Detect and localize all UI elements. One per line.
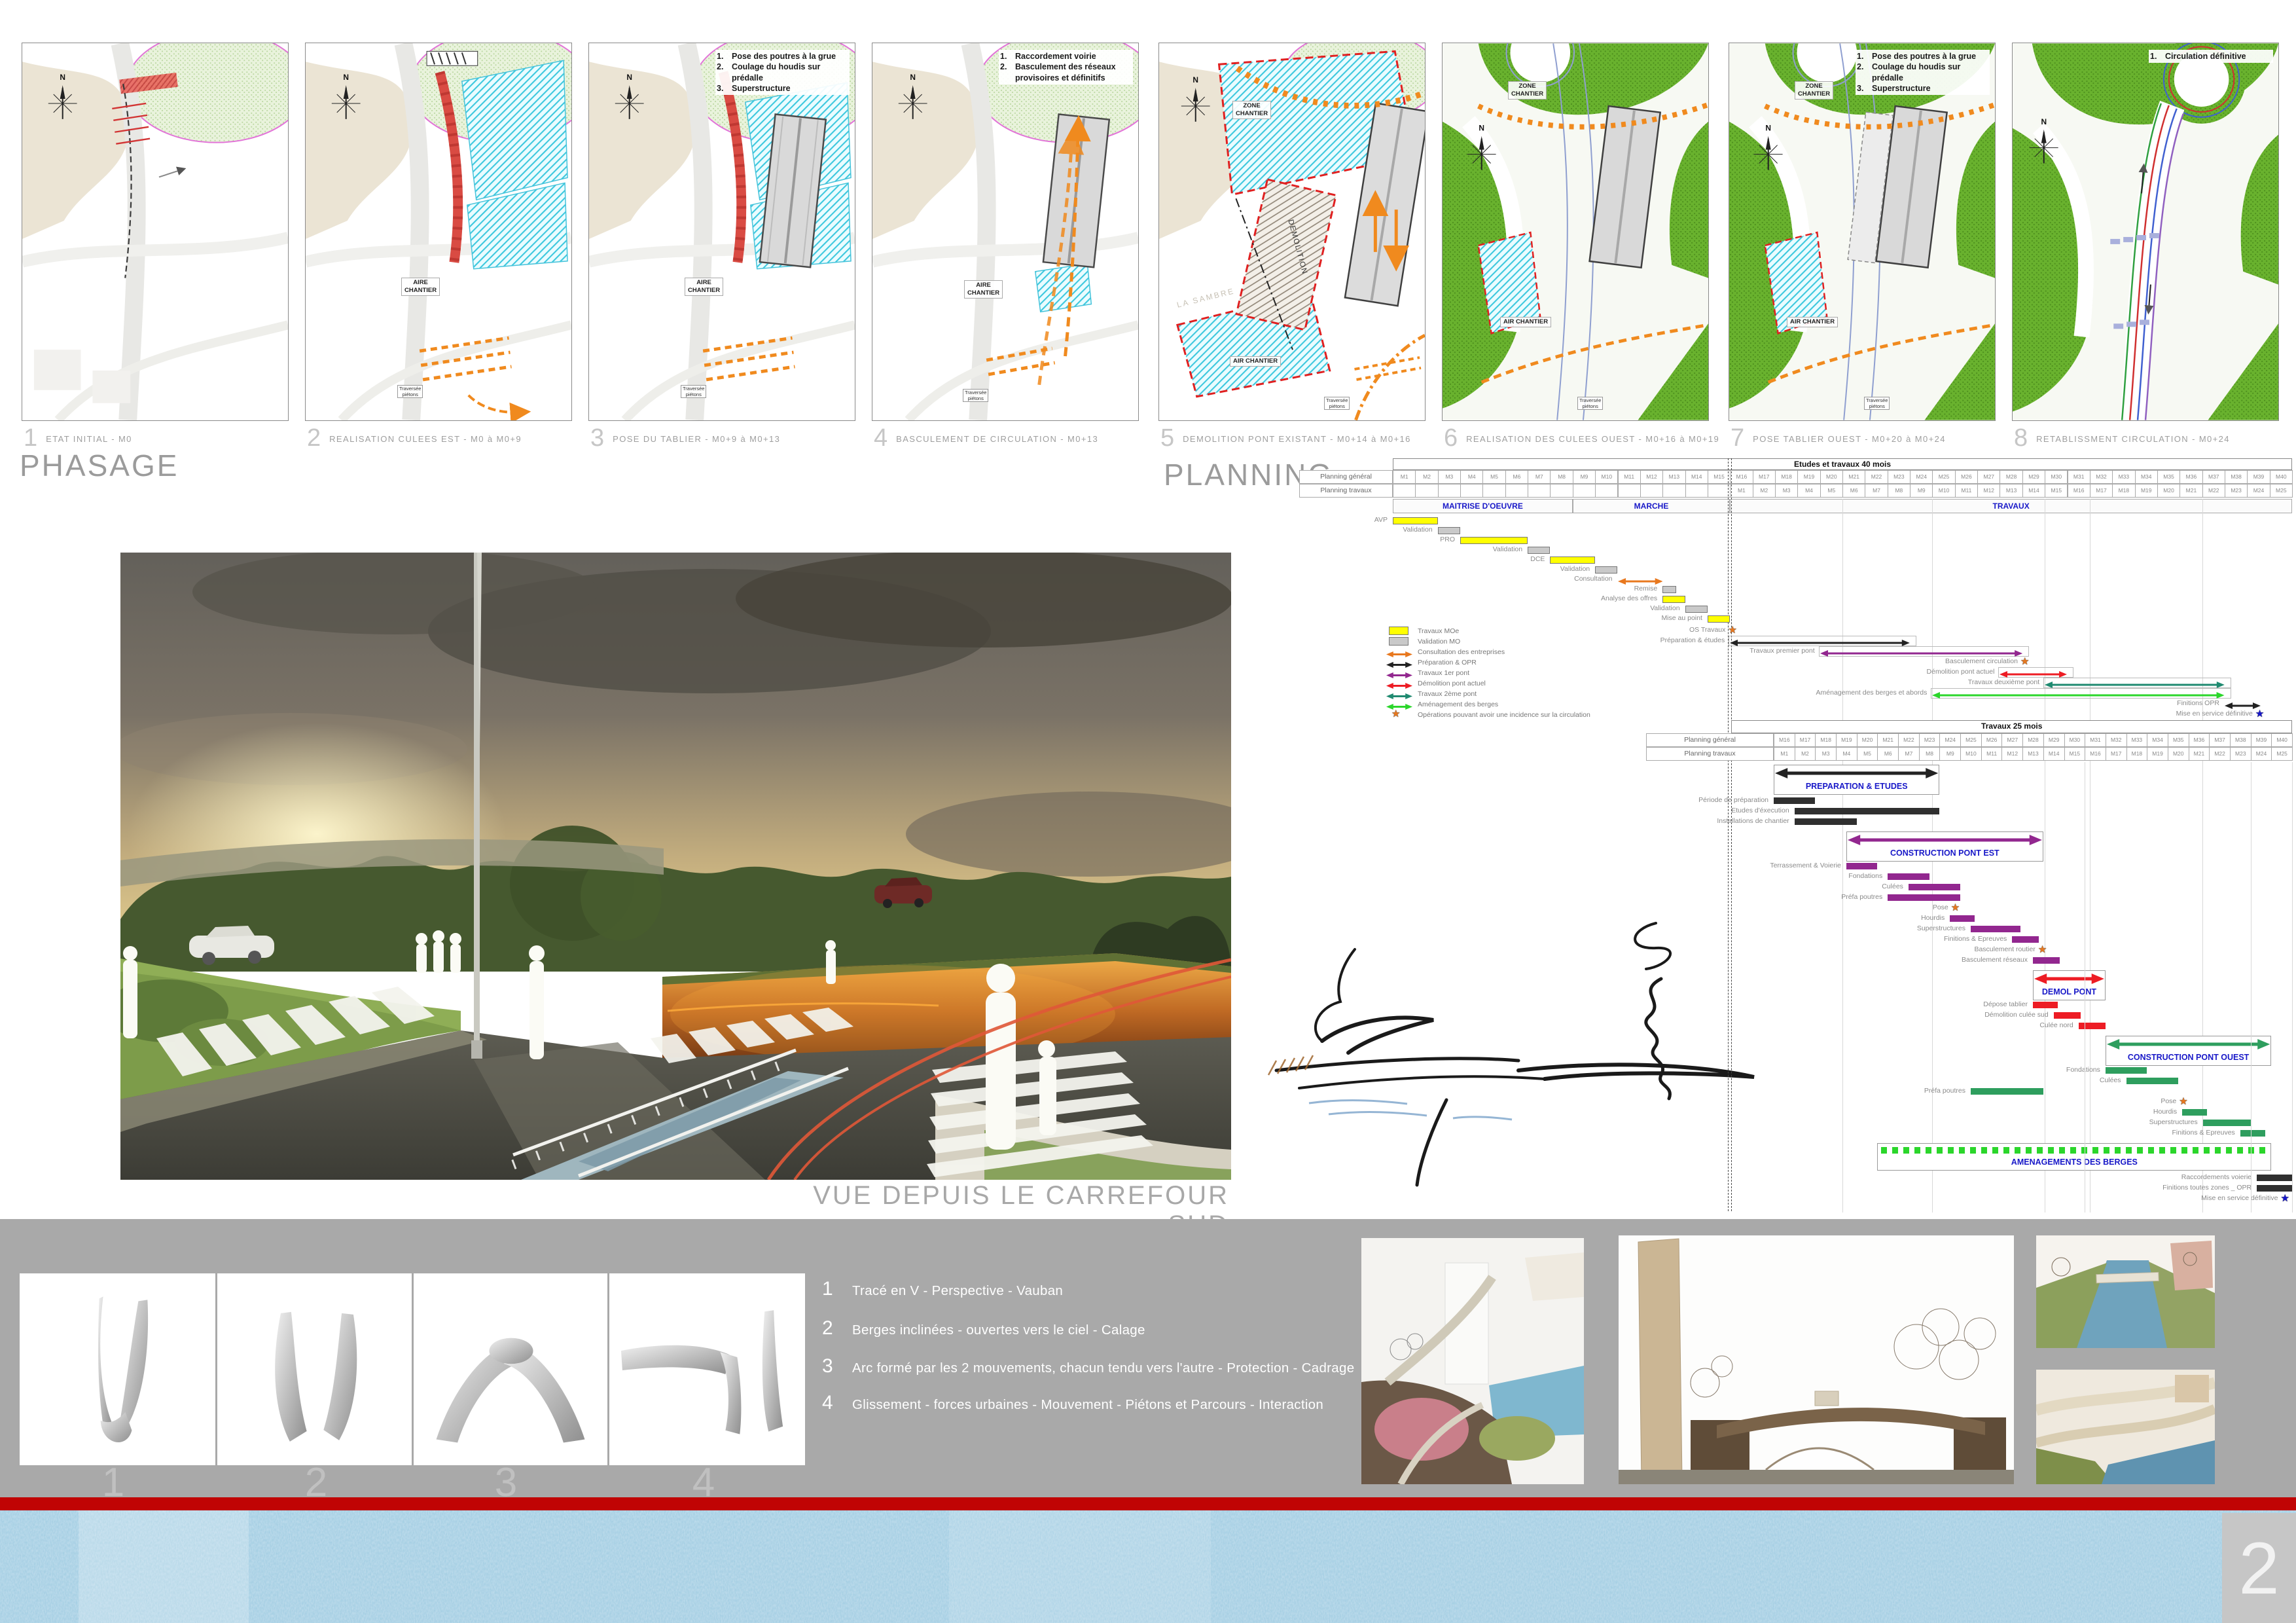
gantt2-month-travaux: M20 xyxy=(2168,747,2189,761)
gantt-row-label: Démolition pont actuel xyxy=(1798,668,1994,677)
gantt2-month-general: M29 xyxy=(2043,733,2065,747)
gantt2-month-general: M16 xyxy=(1774,733,1795,747)
gantt-row-label: Démolition culée sud xyxy=(1852,1011,2049,1020)
gantt1-row2-label: Planning travaux xyxy=(1299,484,1393,498)
gantt-row-label: Superstructures xyxy=(1769,924,1965,934)
hand-photo-4 xyxy=(609,1273,805,1465)
gantt1-month-general: M36 xyxy=(2179,470,2202,484)
gantt1-month-general: M24 xyxy=(1910,470,1933,484)
gantt2-month-travaux: M23 xyxy=(2230,747,2251,761)
gantt2-bar xyxy=(1795,808,1940,814)
gantt2-month-travaux: M22 xyxy=(2209,747,2231,761)
gantt1-month-general: M11 xyxy=(1618,470,1641,484)
bottom-band: 1 2 3 4 1Tracé en V - Perspective - Vaub… xyxy=(0,1219,2296,1498)
gantt-arrow xyxy=(2045,680,2225,686)
page-number: 2 xyxy=(2222,1513,2296,1623)
gantt-row-label: Pose xyxy=(1980,1097,2176,1106)
concept-text: Tracé en V - Perspective - Vauban xyxy=(852,1279,1063,1299)
gantt2-bar xyxy=(1846,863,1878,869)
gantt1-month-travaux: M3 xyxy=(1775,484,1798,498)
zone-chantier-label: ZONE CHANTIER xyxy=(1508,81,1547,100)
gantt-bar xyxy=(1685,606,1708,613)
gantt1-section-travaux: TRAVAUX xyxy=(1730,499,2292,513)
gantt1-month-general: M10 xyxy=(1595,470,1618,484)
gantt1-month-general: M9 xyxy=(1573,470,1596,484)
map-art-etat-initial: N xyxy=(22,43,288,420)
map-caption-text: RETABLISSMENT CIRCULATION - M0+24 xyxy=(2036,434,2230,444)
gantt1-month-general: M3 xyxy=(1438,470,1461,484)
gantt2-month-travaux: M3 xyxy=(1815,747,1837,761)
gantt2-month-general: M18 xyxy=(1815,733,1837,747)
legend-label: Opérations pouvant avoir une incidence s… xyxy=(1418,711,1758,720)
note-num: 3. xyxy=(717,83,727,94)
gantt2-bar xyxy=(2257,1185,2292,1192)
legend-label: Démolition pont actuel xyxy=(1418,680,1758,689)
gantt1-month-general: M14 xyxy=(1685,470,1708,484)
gantt1-month-travaux: M11 xyxy=(1955,484,1978,498)
gantt1-month-travaux xyxy=(1640,484,1663,498)
gantt2-month-travaux: M8 xyxy=(1919,747,1941,761)
gantt1-month-travaux xyxy=(1505,484,1528,498)
gantt1-month-general: M13 xyxy=(1662,470,1685,484)
model-photo-canal xyxy=(2036,1235,2215,1348)
gantt2-section-label: DEMOL PONT xyxy=(2033,987,2106,998)
gantt2-bar xyxy=(1795,818,1857,825)
gantt2-month-travaux: M24 xyxy=(2251,747,2272,761)
gantt1-month-travaux: M12 xyxy=(1977,484,2000,498)
gantt-row-label: Finitions & Epreuves xyxy=(1810,935,2007,944)
gantt2-month-travaux: M21 xyxy=(2189,747,2210,761)
gantt-phase-separator xyxy=(1731,458,1732,1211)
gantt-bar xyxy=(1460,537,1528,544)
gantt-bar xyxy=(1595,566,1617,574)
map-number: 8 xyxy=(2014,426,2028,450)
gantt2-month-general: M19 xyxy=(1836,733,1857,747)
gantt1-month-general: M39 xyxy=(2247,470,2270,484)
gantt1-month-general: M19 xyxy=(1797,470,1820,484)
gantt2-bar xyxy=(2240,1130,2265,1137)
gantt2-bar xyxy=(1950,915,1975,922)
gantt-bar xyxy=(1662,586,1676,593)
gantt2-month-general: M31 xyxy=(2085,733,2106,747)
map-caption-text: REALISATION CULEES EST - M0 à M0+9 xyxy=(329,434,522,444)
note-text: Raccordement voirie xyxy=(1015,51,1096,62)
model-photo-elevation xyxy=(1619,1235,2014,1484)
gantt2-month-general: M24 xyxy=(1939,733,1961,747)
gantt2-row1-label: Planning général xyxy=(1646,733,1774,747)
gantt1-month-general: M32 xyxy=(2090,470,2113,484)
concept-number: 1 xyxy=(822,1279,838,1299)
gantt2-month-travaux: M11 xyxy=(1981,747,2003,761)
legend-label: Travaux 1er pont xyxy=(1418,669,1758,678)
gantt-star-marker: ★ xyxy=(2179,1097,2191,1107)
gantt2-bar xyxy=(1888,894,1960,901)
gantt-row-label: Validation xyxy=(1326,545,1522,555)
note-text: Superstructure xyxy=(732,83,791,94)
legend-swatch-arrow xyxy=(1386,691,1412,697)
traversee-pietons-label: Traversée piétons xyxy=(681,385,706,398)
hand-divider xyxy=(215,1273,217,1465)
gantt-bar xyxy=(1438,527,1460,534)
gantt2-section-label: PREPARATION & ETUDES xyxy=(1774,782,1939,792)
gantt-phase-separator xyxy=(1728,458,1729,1211)
gantt2-month-travaux: M13 xyxy=(2022,747,2044,761)
gantt-star-marker: ★ xyxy=(2020,657,2032,667)
gantt2-section-label: CONSTRUCTION PONT OUEST xyxy=(2106,1053,2271,1063)
gantt1-month-general: M33 xyxy=(2112,470,2135,484)
gantt1-month-general: M5 xyxy=(1482,470,1505,484)
air-chantier-label: AIR CHANTIER xyxy=(1787,317,1838,327)
gantt1-month-travaux xyxy=(1393,484,1416,498)
gantt-arrow xyxy=(2034,974,2104,984)
zone-chantier-label: ZONE CHANTIER xyxy=(1795,81,1833,100)
legend-label: Travaux MOe xyxy=(1418,627,1758,636)
gantt1-month-travaux: M1 xyxy=(1730,484,1753,498)
map-number: 3 xyxy=(590,426,604,450)
gantt2-month-general: M35 xyxy=(2168,733,2189,747)
legend-label: Aménagement des berges xyxy=(1418,701,1758,710)
map-note: 1.Circulation définitive xyxy=(2149,50,2273,63)
gantt2-bar xyxy=(2012,936,2039,943)
concept-item-1: 1Tracé en V - Perspective - Vauban xyxy=(822,1279,1063,1299)
gantt2-month-travaux: M1 xyxy=(1774,747,1795,761)
concept-item-2: 2Berges inclinées - ouvertes vers le cie… xyxy=(822,1319,1145,1338)
gantt2-month-general: M28 xyxy=(2022,733,2044,747)
gantt2-bar xyxy=(2203,1120,2251,1126)
map-art-circulation-definitive: N xyxy=(2013,43,2278,420)
gantt1-month-general: M4 xyxy=(1460,470,1483,484)
gantt-gridline xyxy=(2202,499,2203,1213)
gantt2-month-general: M25 xyxy=(1960,733,1982,747)
map-art-basculement: N xyxy=(872,43,1138,420)
gantt2-month-general: M23 xyxy=(1919,733,1941,747)
gantt-row-label: Validation xyxy=(1484,604,1680,613)
gantt1-month-general: M7 xyxy=(1528,470,1551,484)
gantt-row-label: Finitions & Epreuves xyxy=(2039,1129,2235,1138)
gantt1-month-travaux xyxy=(1573,484,1596,498)
gantt-row-label: Finitions OPR xyxy=(2023,699,2219,708)
gantt2-bar xyxy=(2106,1067,2147,1074)
gantt-gridline xyxy=(2292,762,2293,1213)
gantt1-month-travaux: M17 xyxy=(2090,484,2113,498)
hand-photo-2 xyxy=(217,1273,412,1465)
hand-gesture-strip xyxy=(20,1273,805,1465)
map-caption-6: 6REALISATION DES CULEES OUEST - M0+16 à … xyxy=(1444,426,1719,450)
gantt1-month-general: M38 xyxy=(2225,470,2248,484)
hand-photo-1 xyxy=(20,1273,215,1465)
note-num: 1. xyxy=(1857,51,1867,62)
gantt-star-marker: ★ xyxy=(2280,1194,2292,1204)
compass-n: N xyxy=(1479,124,1484,133)
gantt1-month-travaux: M15 xyxy=(2045,484,2068,498)
map-note: 1.Pose des poutres à la grue 2.Coulage d… xyxy=(1856,50,1990,95)
aire-chantier-label: AIRE CHANTIER xyxy=(401,278,440,296)
gantt1-month-travaux xyxy=(1460,484,1483,498)
gantt-arrow xyxy=(2225,701,2261,707)
gantt2-month-travaux: M18 xyxy=(2126,747,2148,761)
gantt-gridline xyxy=(2251,762,2251,1213)
gantt1-month-travaux xyxy=(1662,484,1685,498)
map-caption-5: 5DEMOLITION PONT EXISTANT - M0+14 à M0+1… xyxy=(1160,426,1411,450)
gantt2-month-travaux: M7 xyxy=(1898,747,1920,761)
legend-swatch-arrow xyxy=(1386,649,1412,655)
gantt2-bar xyxy=(2079,1023,2106,1029)
gantt2-bar xyxy=(1971,1088,2043,1095)
legend-swatch-arrow xyxy=(1386,670,1412,676)
gantt-row-label: Superstructures xyxy=(2001,1118,2198,1127)
gantt1-month-travaux: M25 xyxy=(2270,484,2293,498)
concept-number: 3 xyxy=(822,1357,838,1376)
gantt1-month-general: M27 xyxy=(1977,470,2000,484)
gantt1-month-travaux: M7 xyxy=(1865,484,1888,498)
gantt1-month-travaux: M18 xyxy=(2112,484,2135,498)
gantt-row-label: Pose xyxy=(1752,903,1948,913)
gantt2-bar xyxy=(2033,957,2060,964)
gantt1-month-travaux xyxy=(1550,484,1573,498)
phasage-map-6: N ZONE CHANTIER AIR CHANTIER Traversée p… xyxy=(1442,43,1709,421)
gantt-row-label: Travaux deuxième pont xyxy=(1843,678,2039,687)
gantt1-month-general: M40 xyxy=(2270,470,2293,484)
map-note: 1.Raccordement voirie 2.Basculement des … xyxy=(999,50,1133,84)
gantt-row-label: Basculement routier xyxy=(1839,945,2036,955)
gantt1-month-travaux: M22 xyxy=(2202,484,2225,498)
gantt1-row1-label: Planning général xyxy=(1299,470,1393,484)
gantt1-month-general: M26 xyxy=(1955,470,1978,484)
gantt1-month-travaux: M13 xyxy=(2000,484,2022,498)
gantt-row-label: Aménagement des berges et abords xyxy=(1731,689,1927,698)
legend-swatch-box xyxy=(1389,627,1408,635)
gantt1-month-general: M28 xyxy=(2000,470,2022,484)
gantt2-month-travaux: M19 xyxy=(2147,747,2168,761)
note-num: 1. xyxy=(2150,51,2161,62)
gantt1-month-general: M8 xyxy=(1550,470,1573,484)
gantt-bar xyxy=(1708,615,1730,623)
phasage-map-1: N xyxy=(22,43,289,421)
legend-swatch-arrow xyxy=(1386,659,1412,665)
concept-text: Berges inclinées - ouvertes vers le ciel… xyxy=(852,1319,1145,1338)
gantt2-month-general: M27 xyxy=(2001,733,2023,747)
note-text: Pose des poutres à la grue xyxy=(732,51,836,62)
map-note: 1.Pose des poutres à la grue 2.Coulage d… xyxy=(715,50,850,95)
gantt-row-label: Période de préparation xyxy=(1572,796,1768,805)
traversee-pietons-label: Traversée piétons xyxy=(1577,397,1603,410)
gantt2-month-general: M36 xyxy=(2189,733,2210,747)
note-text: Coulage du houdis sur prédalle xyxy=(732,62,848,83)
gantt1-month-general: M21 xyxy=(1842,470,1865,484)
map-caption-text: REALISATION DES CULEES OUEST - M0+16 à M… xyxy=(1466,434,1719,444)
gantt1-section-marche: MARCHE xyxy=(1573,499,1730,513)
map-art-pose-tablier-ouest: N xyxy=(1729,43,1995,420)
gantt2-month-general: M30 xyxy=(2064,733,2086,747)
concept-item-3: 3Arc formé par les 2 mouvements, chacun … xyxy=(822,1357,1354,1376)
note-text: Circulation définitive xyxy=(2165,51,2246,62)
gantt-row-label: Culée nord xyxy=(1877,1021,2073,1030)
gantt-row-label: Culées xyxy=(1707,883,1903,892)
gantt-row-label: Hourdis xyxy=(1981,1108,2177,1117)
gantt1-month-travaux: M5 xyxy=(1820,484,1843,498)
gantt2-month-general: M32 xyxy=(2106,733,2127,747)
gantt-arrow xyxy=(1618,576,1663,583)
gantt-arrow xyxy=(2000,669,2067,676)
concept-number: 4 xyxy=(822,1393,838,1413)
gantt1-month-travaux xyxy=(1438,484,1461,498)
map-art-pose-tablier: N xyxy=(589,43,855,420)
legend-label: Travaux 2ème pont xyxy=(1418,690,1758,699)
presentation-board: N N AIRE CHANTIER Traversée piétons xyxy=(0,0,2296,1623)
gantt2-month-travaux: M25 xyxy=(2271,747,2293,761)
gantt2-month-general: M33 xyxy=(2126,733,2148,747)
gantt2-bar xyxy=(2054,1012,2081,1019)
compass-n: N xyxy=(343,73,349,82)
gantt1-month-general: M16 xyxy=(1730,470,1753,484)
gantt2-month-general: M26 xyxy=(1981,733,2003,747)
gantt1-month-travaux: M24 xyxy=(2247,484,2270,498)
gantt-row-label: Basculement réseaux xyxy=(1831,956,2028,965)
perspective-rendering xyxy=(120,553,1231,1180)
gantt1-month-travaux xyxy=(1685,484,1708,498)
gantt1-month-travaux: M8 xyxy=(1888,484,1910,498)
legend-label: Préparation & OPR xyxy=(1418,659,1758,668)
page-number-text: 2 xyxy=(2238,1526,2279,1611)
gantt2-month-travaux: M17 xyxy=(2106,747,2127,761)
gantt1-month-general: M15 xyxy=(1708,470,1731,484)
traversee-pietons-label: Traversée piétons xyxy=(1864,397,1890,410)
gantt2-month-general: M37 xyxy=(2209,733,2231,747)
note-text: Basculement des réseaux provisoires et d… xyxy=(1015,62,1132,83)
gantt-row-label: Consultation xyxy=(1416,575,1613,584)
gantt-bar xyxy=(1662,596,1685,603)
gantt1-month-travaux xyxy=(1415,484,1438,498)
gantt1-month-general: M18 xyxy=(1775,470,1798,484)
gantt2-month-general: M20 xyxy=(1857,733,1878,747)
air-chantier-label: AIR CHANTIER xyxy=(1230,356,1281,367)
compass-n: N xyxy=(2041,117,2047,126)
gantt1-section-maitrise-d-oeuvre: MAITRISE D'OEUVRE xyxy=(1393,499,1573,513)
aire-chantier-label: AIRE CHANTIER xyxy=(685,278,723,296)
gantt2-bar xyxy=(1971,926,2020,932)
gantt2-section-label: CONSTRUCTION PONT EST xyxy=(1846,848,2043,859)
gantt2-month-travaux: M10 xyxy=(1960,747,1982,761)
map-number: 6 xyxy=(1444,426,1458,450)
gantt1-month-general: M37 xyxy=(2202,470,2225,484)
red-stripe xyxy=(0,1497,2296,1510)
gantt-row-label: PRO xyxy=(1259,536,1455,545)
gantt1-month-general: M25 xyxy=(1932,470,1955,484)
gantt2-bar xyxy=(2033,1002,2058,1008)
gantt1-month-general: M34 xyxy=(2135,470,2158,484)
gantt2-section-label: AMENAGEMENTS DES BERGES xyxy=(1877,1158,2271,1168)
legend-swatch-arrow xyxy=(1386,680,1412,686)
gantt1-month-travaux: M16 xyxy=(2068,484,2090,498)
gantt1-month-general: M23 xyxy=(1888,470,1910,484)
gantt-row-label: Remise xyxy=(1461,585,1657,594)
phasage-map-8: N 1.Circulation définitive xyxy=(2012,43,2279,421)
gantt2-month-travaux: M6 xyxy=(1877,747,1899,761)
gantt1-month-general: M1 xyxy=(1393,470,1416,484)
gantt2-title: Travaux 25 mois xyxy=(1731,720,2292,733)
note-num: 2. xyxy=(717,62,727,83)
gantt2-month-travaux: M12 xyxy=(2001,747,2023,761)
map-caption-8: 8RETABLISSMENT CIRCULATION - M0+24 xyxy=(2014,426,2230,450)
note-text: Coulage du houdis sur prédalle xyxy=(1872,62,1988,83)
gantt2-month-general: M17 xyxy=(1795,733,1816,747)
map-caption-2: 2REALISATION CULEES EST - M0 à M0+9 xyxy=(307,426,522,450)
gantt-row-label: Installations de chantier xyxy=(1593,817,1789,826)
hand-photo-3 xyxy=(414,1273,607,1465)
map-art-culees-est: N xyxy=(306,43,571,420)
gantt-row-label: Etudes d'éxecution xyxy=(1593,807,1789,816)
gantt2-month-travaux: M2 xyxy=(1795,747,1816,761)
gantt-row-label: Validation xyxy=(1236,526,1433,535)
gantt1-title: Etudes et travaux 40 mois xyxy=(1393,458,2292,470)
gantt-row-label: Hourdis xyxy=(1748,914,1945,923)
gantt-row-label: Préfa poutres xyxy=(1769,1087,1965,1096)
concept-item-4: 4Glissement - forces urbaines - Mouvemen… xyxy=(822,1393,1323,1413)
gantt1-month-general: M29 xyxy=(2022,470,2045,484)
gantt2-bar xyxy=(2257,1175,2292,1181)
gantt-gridline xyxy=(1842,499,1843,1213)
gantt1-month-travaux xyxy=(1618,484,1641,498)
gantt1-month-travaux xyxy=(1708,484,1731,498)
legend-swatch-arrow xyxy=(1386,701,1412,707)
legend-label: Consultation des entreprises xyxy=(1418,648,1758,657)
concept-text: Glissement - forces urbaines - Mouvement… xyxy=(852,1393,1323,1413)
map-caption-text: DEMOLITION PONT EXISTANT - M0+14 à M0+16 xyxy=(1183,434,1411,444)
gantt-arrow xyxy=(1820,648,2022,655)
gantt2-month-travaux: M9 xyxy=(1939,747,1961,761)
note-num: 1. xyxy=(1000,51,1011,62)
hand-divider xyxy=(412,1273,414,1465)
map-number: 4 xyxy=(874,426,888,450)
gantt1-month-general: M31 xyxy=(2068,470,2090,484)
map-number: 1 xyxy=(24,426,37,450)
gantt2-bar xyxy=(2126,1078,2178,1084)
gantt2-bar xyxy=(2182,1109,2207,1116)
compass-n: N xyxy=(910,73,916,82)
note-num: 1. xyxy=(717,51,727,62)
gantt2-month-general: M34 xyxy=(2147,733,2168,747)
gantt1-month-travaux: M14 xyxy=(2022,484,2045,498)
gantt-bar xyxy=(1528,547,1550,554)
phasage-heading: PHASAGE xyxy=(20,450,179,481)
map-caption-1: 1ETAT INITIAL - M0 xyxy=(24,426,132,450)
gantt-star-marker: ★ xyxy=(2038,945,2050,955)
gantt1-month-general: M30 xyxy=(2045,470,2068,484)
gantt-bar xyxy=(1393,517,1438,524)
map-caption-text: ETAT INITIAL - M0 xyxy=(46,434,132,444)
map-caption-4: 4BASCULEMENT DE CIRCULATION - M0+13 xyxy=(874,426,1098,450)
map-number: 5 xyxy=(1160,426,1174,450)
note-num: 2. xyxy=(1857,62,1867,83)
map-caption-3: 3POSE DU TABLIER - M0+9 à M0+13 xyxy=(590,426,780,450)
gantt1-month-general: M35 xyxy=(2157,470,2180,484)
gantt2-month-general: M22 xyxy=(1898,733,1920,747)
gantt1-month-travaux xyxy=(1482,484,1505,498)
map-caption-text: POSE TABLIER OUEST - M0+20 à M0+24 xyxy=(1753,434,1946,444)
gantt-arrow xyxy=(2107,1039,2270,1049)
gantt1-month-travaux: M23 xyxy=(2225,484,2248,498)
gantt1-month-travaux: M19 xyxy=(2135,484,2158,498)
gantt1-month-travaux: M10 xyxy=(1932,484,1955,498)
traversee-pietons-label: Traversée piétons xyxy=(963,389,988,402)
gantt-row-label: Basculement circulation xyxy=(1821,657,2018,666)
note-text: Superstructure xyxy=(1872,83,1931,94)
gantt2-bar xyxy=(1888,873,1929,880)
gantt2-month-travaux: M5 xyxy=(1857,747,1878,761)
gantt2-month-general: M38 xyxy=(2230,733,2251,747)
map-caption-text: POSE DU TABLIER - M0+9 à M0+13 xyxy=(613,434,780,444)
gantt-arrow xyxy=(1775,768,1938,778)
